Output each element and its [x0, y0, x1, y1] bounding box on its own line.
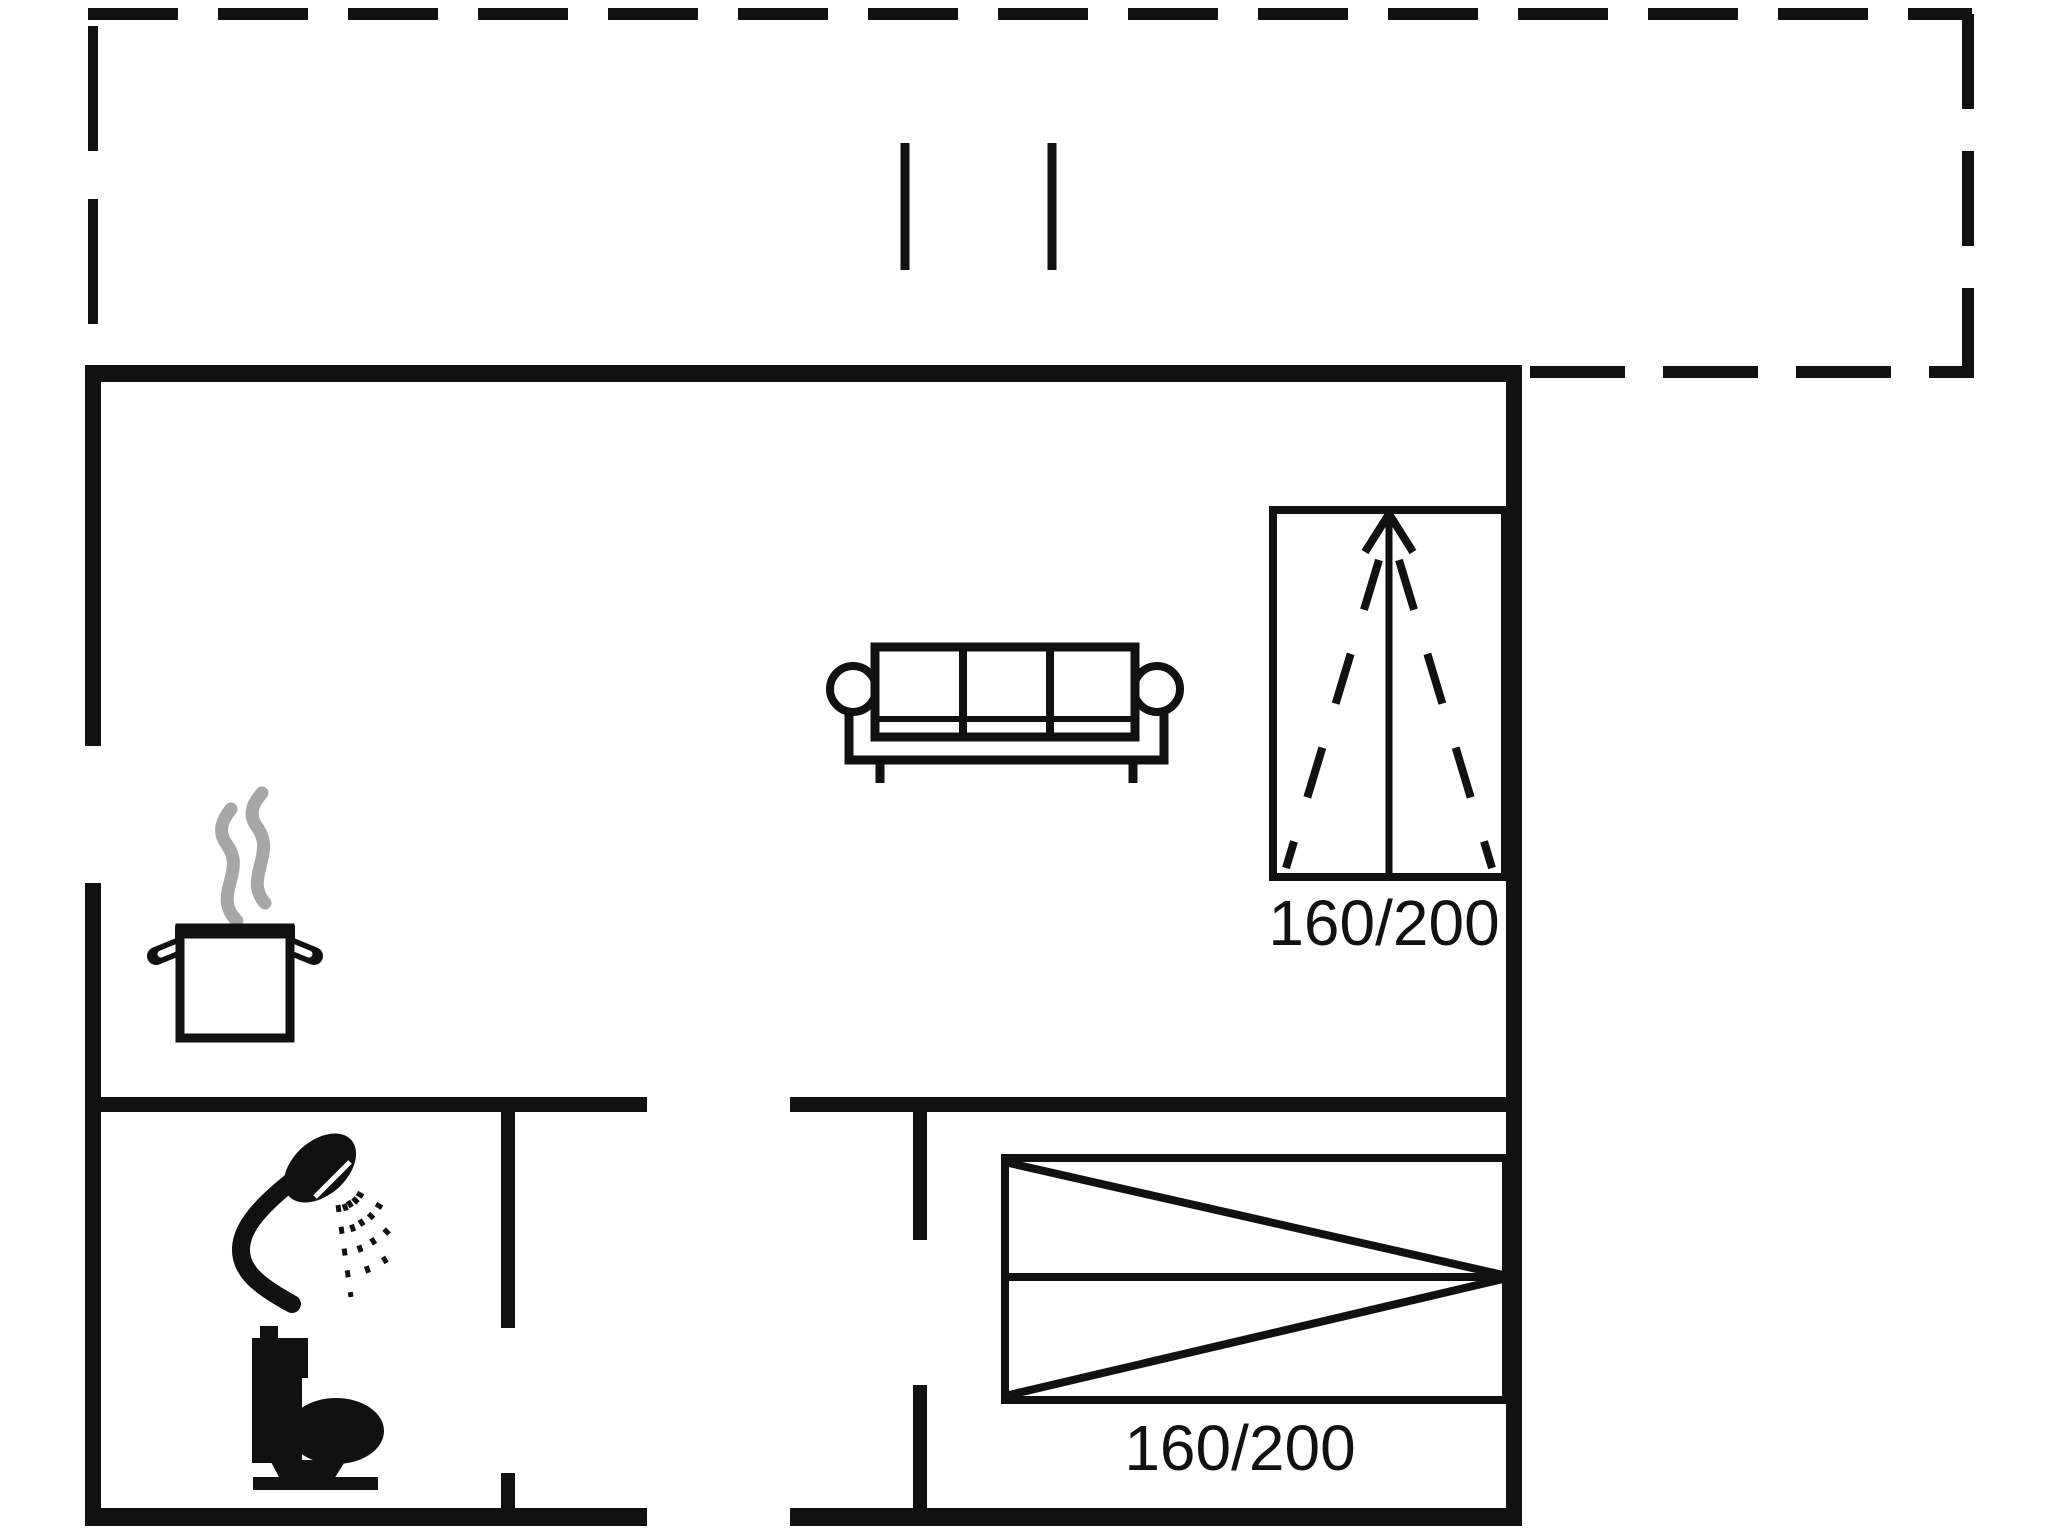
sofa-backrest: [875, 647, 1135, 737]
shower-handle: [241, 1177, 297, 1304]
shower-icon: [241, 1120, 395, 1304]
terrace-door-tick-icon: [905, 143, 1052, 270]
wall-bathroom-right-upper: [501, 1112, 515, 1328]
toilet-icon: [252, 1326, 384, 1490]
sofa-icon: [830, 647, 1180, 783]
shower-spray-dots: [338, 1193, 395, 1297]
floor-plan-drawing: 160/200 160/200: [0, 0, 2048, 1536]
floor-plan-canvas: 160/200 160/200: [0, 0, 2048, 1536]
wall-mid-horizontal-left: [85, 1097, 647, 1112]
cooking-pot-icon: [156, 928, 314, 1038]
wardrobe-size-label: 160/200: [1268, 887, 1499, 959]
wall-divider-lower: [913, 1385, 927, 1508]
pot-body: [180, 928, 290, 1038]
wall-divider-upper: [913, 1112, 927, 1240]
toilet-tank: [252, 1338, 308, 1378]
sofa-arm-right: [1134, 666, 1180, 712]
sofa-arm-left: [830, 666, 876, 712]
double-bed-icon: [1005, 1158, 1506, 1400]
wall-bathroom-right-stub: [501, 1473, 515, 1518]
toilet-pedestal: [270, 1460, 346, 1479]
wall-left-lower: [85, 883, 101, 1526]
wall-bottom-left: [85, 1508, 647, 1526]
wall-top: [85, 365, 1522, 382]
steam-icon: [222, 793, 265, 921]
wall-left-upper: [85, 365, 101, 746]
wall-mid-horizontal-right: [790, 1097, 1506, 1112]
toilet-flush-knob: [260, 1326, 278, 1340]
toilet-foot: [253, 1477, 378, 1490]
terrace-boundary: [88, 14, 1974, 378]
toilet-bowl: [288, 1398, 384, 1464]
wall-bottom-right: [790, 1508, 1522, 1526]
bed-size-label: 160/200: [1124, 1412, 1355, 1484]
wardrobe-icon: [1273, 510, 1505, 877]
